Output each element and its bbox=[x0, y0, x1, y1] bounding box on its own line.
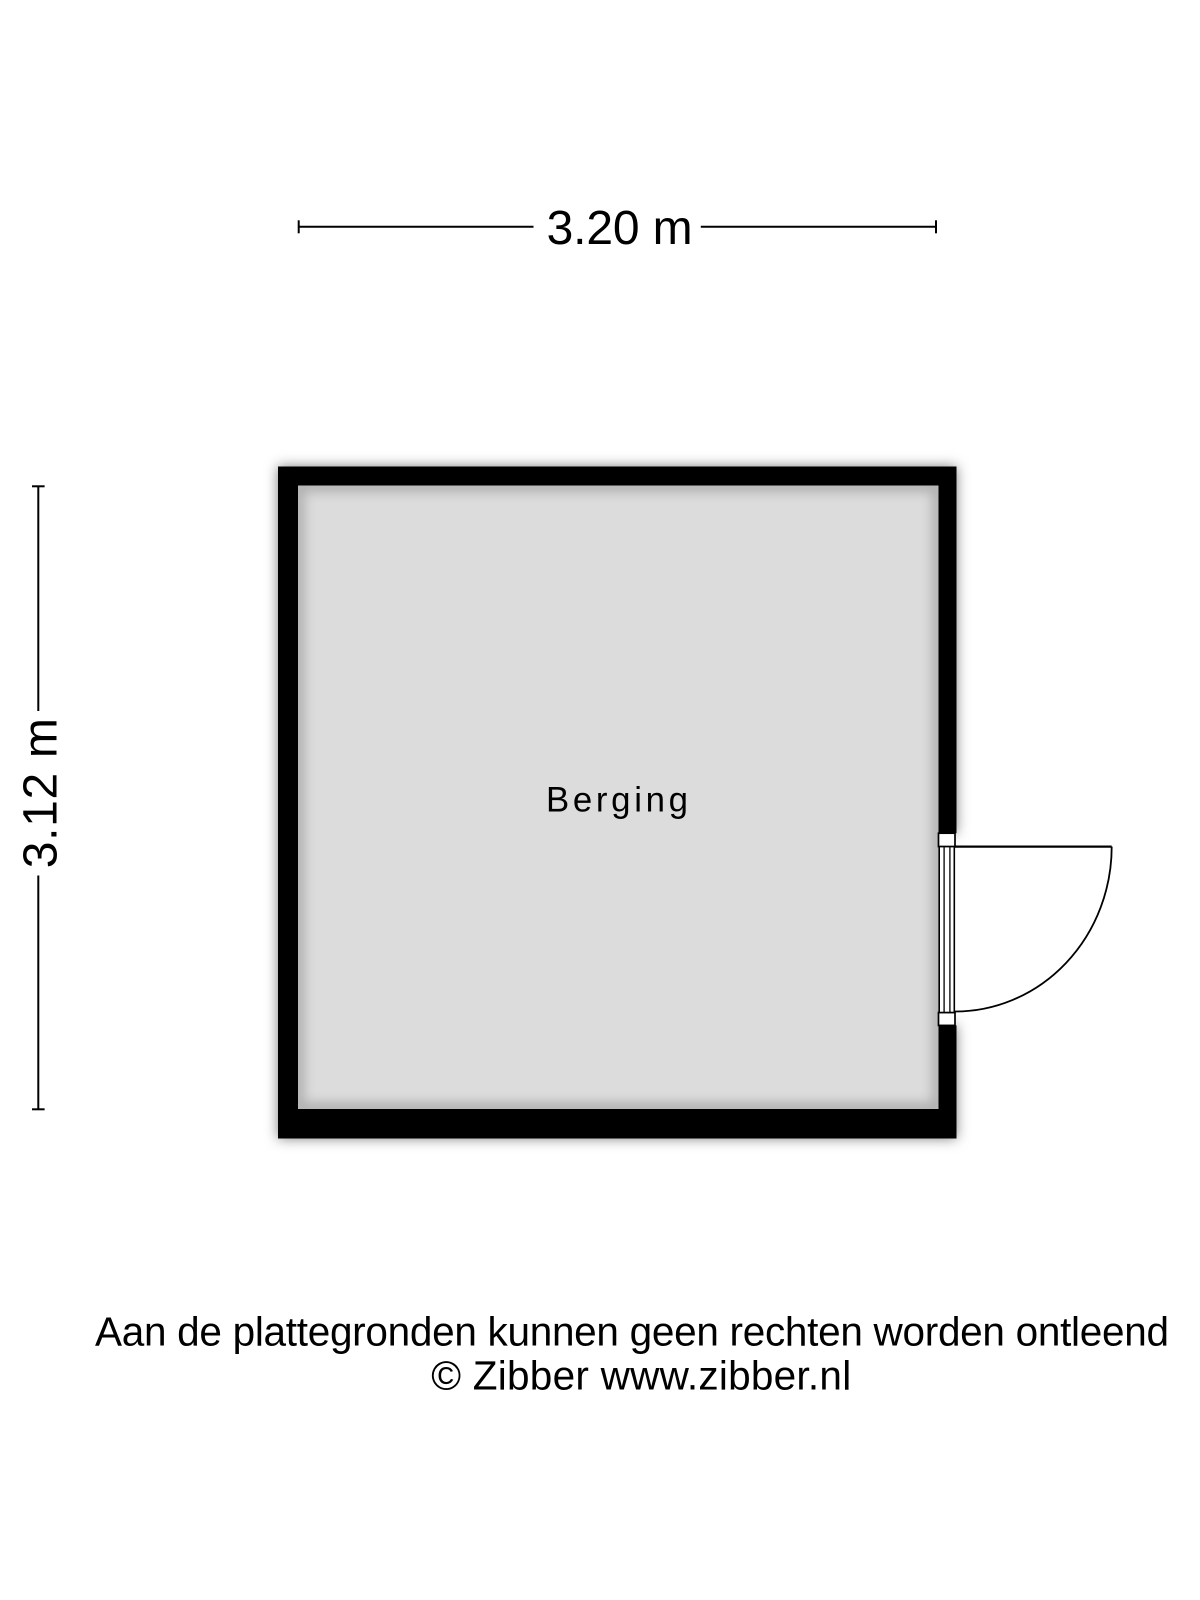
svg-text:Aan de plattegronden kunnen ge: Aan de plattegronden kunnen geen rechten… bbox=[95, 1309, 1169, 1355]
svg-text:3.20 m: 3.20 m bbox=[547, 202, 693, 255]
svg-text:© Zibber www.zibber.nl: © Zibber www.zibber.nl bbox=[431, 1352, 851, 1398]
svg-text:3.12 m: 3.12 m bbox=[15, 718, 68, 868]
